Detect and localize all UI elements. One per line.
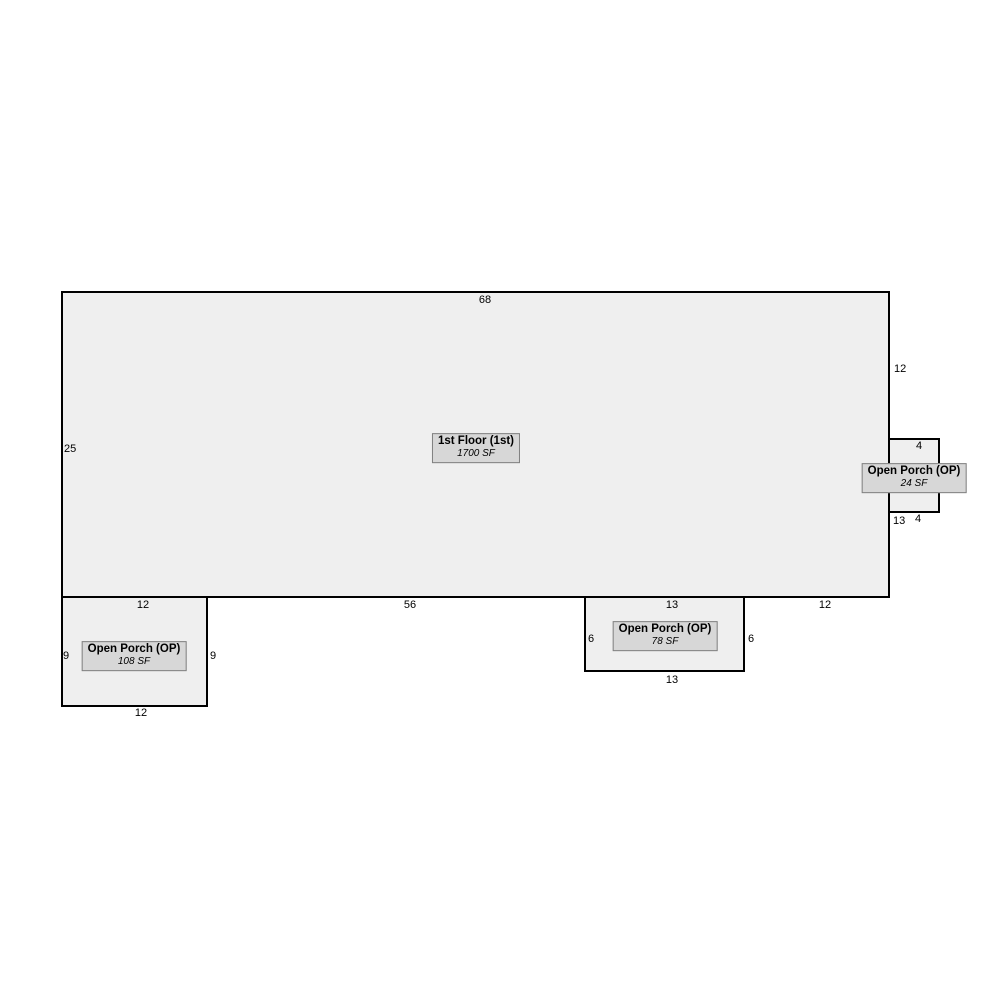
floor-plan-sketch: 1st Floor (1st) 1700 SF Open Porch (OP) … xyxy=(0,0,1000,1000)
dim-first-floor-bottom-left: 12 xyxy=(137,600,149,611)
first-floor-label-title: 1st Floor (1st) xyxy=(438,435,514,448)
dim-first-floor-top: 68 xyxy=(479,295,491,306)
dim-open-porch-right-bottom: 4 xyxy=(915,514,921,525)
dim-first-floor-bottom-right: 12 xyxy=(819,600,831,611)
dim-open-porch-left-bottom: 12 xyxy=(135,708,147,719)
dim-open-porch-left-east: 9 xyxy=(210,651,216,662)
dim-open-porch-middle-east: 6 xyxy=(748,634,754,645)
open-porch-right-label: Open Porch (OP) 24 SF xyxy=(862,463,967,493)
first-floor-label-sf: 1700 SF xyxy=(438,448,514,460)
dim-open-porch-left-west: 9 xyxy=(63,651,69,662)
dim-first-floor-left: 25 xyxy=(64,444,76,455)
dim-first-floor-bottom-middle: 56 xyxy=(404,600,416,611)
open-porch-middle-label-sf: 78 SF xyxy=(619,636,712,648)
open-porch-right-label-sf: 24 SF xyxy=(868,478,961,490)
first-floor-label: 1st Floor (1st) 1700 SF xyxy=(432,433,520,463)
open-porch-left-label-title: Open Porch (OP) xyxy=(88,643,181,656)
open-porch-middle-label-title: Open Porch (OP) xyxy=(619,623,712,636)
dim-first-floor-right-upper: 12 xyxy=(894,364,906,375)
dim-first-floor-bottom-porch: 13 xyxy=(666,600,678,611)
dim-open-porch-right-top: 4 xyxy=(916,441,922,452)
dim-first-floor-right-lower: 13 xyxy=(893,516,905,527)
open-porch-left-label: Open Porch (OP) 108 SF xyxy=(82,641,187,671)
open-porch-middle-label: Open Porch (OP) 78 SF xyxy=(613,621,718,651)
dim-open-porch-middle-west: 6 xyxy=(588,634,594,645)
dim-open-porch-middle-bottom: 13 xyxy=(666,675,678,686)
open-porch-right-label-title: Open Porch (OP) xyxy=(868,465,961,478)
open-porch-left-label-sf: 108 SF xyxy=(88,656,181,668)
